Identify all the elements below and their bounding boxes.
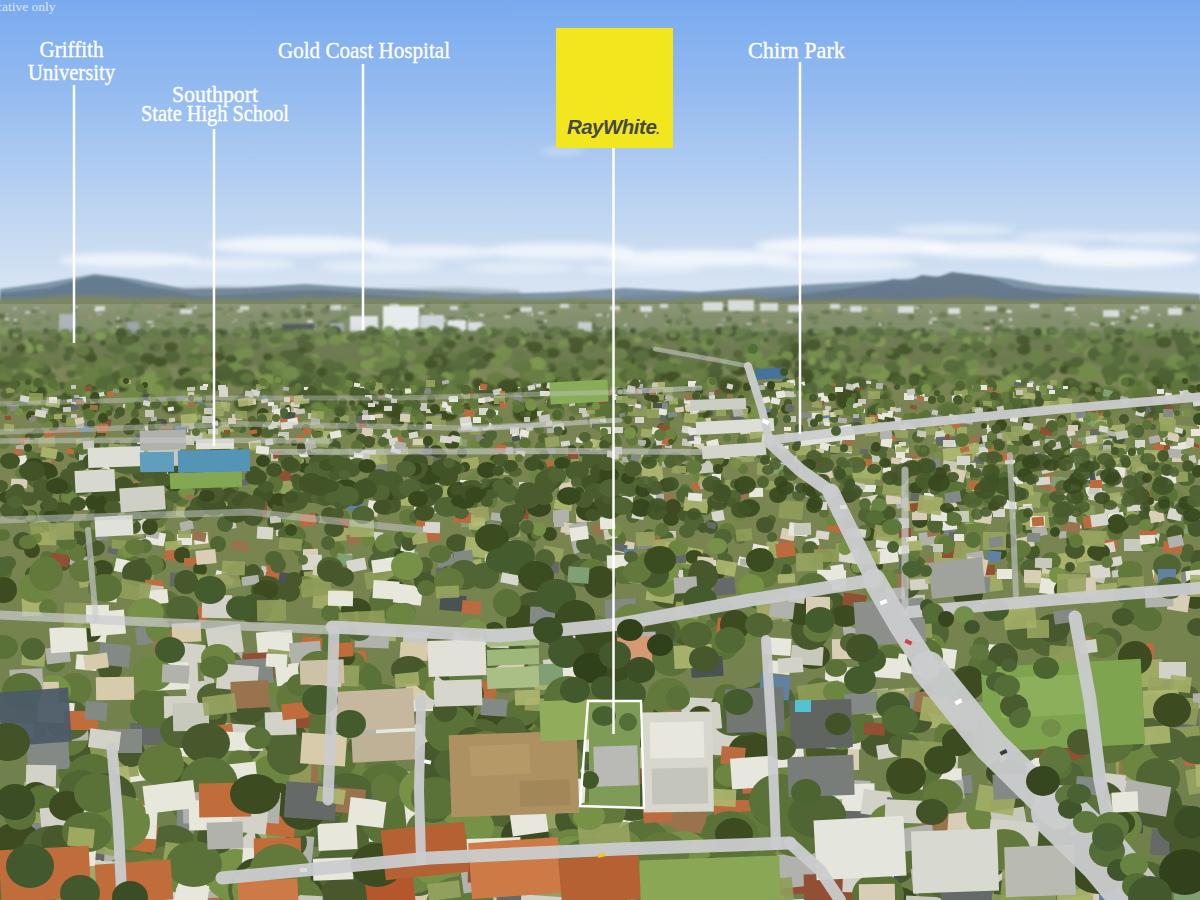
svg-text:RayWhite.: RayWhite. bbox=[567, 115, 659, 138]
svg-text:cative only: cative only bbox=[0, 0, 56, 14]
svg-text:Chirn Park: Chirn Park bbox=[748, 38, 845, 63]
svg-text:State High School: State High School bbox=[141, 101, 289, 126]
svg-text:Griffith: Griffith bbox=[40, 37, 104, 62]
svg-text:University: University bbox=[28, 60, 115, 85]
svg-text:Gold Coast Hospital: Gold Coast Hospital bbox=[278, 38, 450, 63]
